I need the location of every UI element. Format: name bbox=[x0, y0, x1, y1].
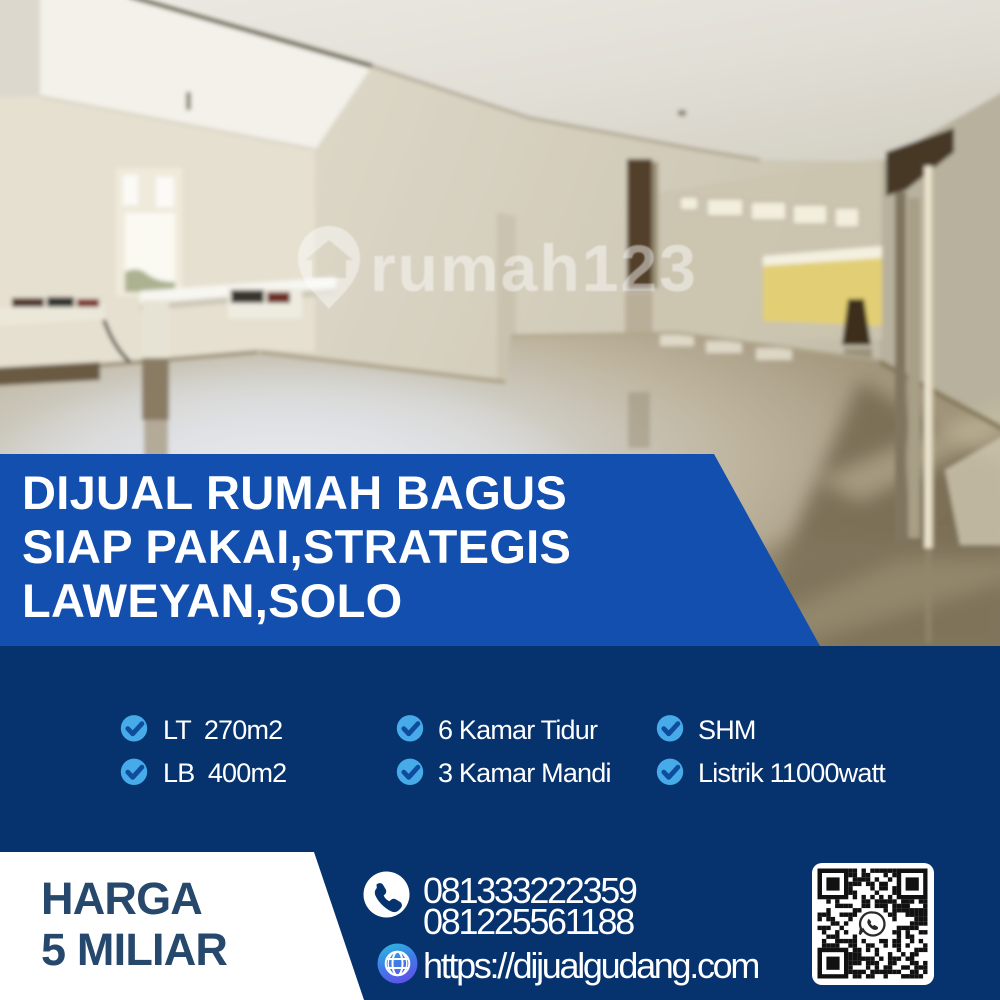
svg-text:rumah123: rumah123 bbox=[370, 231, 698, 305]
